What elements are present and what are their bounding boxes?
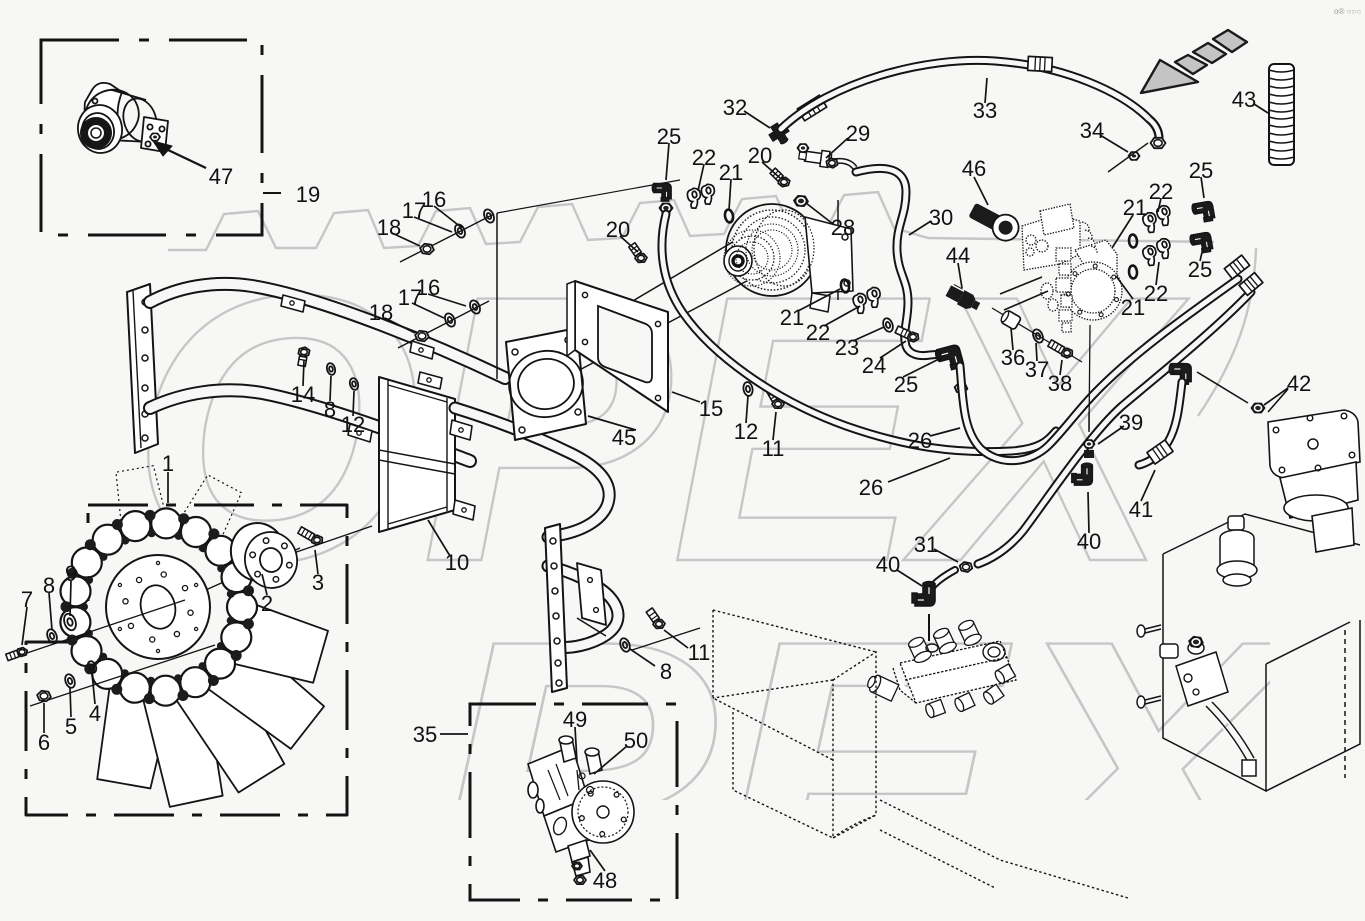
svg-text:33: 33 <box>973 98 997 123</box>
svg-text:50: 50 <box>624 728 648 753</box>
svg-text:9: 9 <box>65 561 77 586</box>
svg-text:23: 23 <box>835 335 859 360</box>
svg-text:20: 20 <box>606 217 630 242</box>
svg-text:30: 30 <box>929 205 953 230</box>
svg-text:28: 28 <box>831 215 855 240</box>
svg-text:39: 39 <box>1119 410 1143 435</box>
svg-text:43: 43 <box>1232 87 1256 112</box>
svg-text:15: 15 <box>699 396 723 421</box>
svg-text:36: 36 <box>1001 345 1025 370</box>
svg-text:22: 22 <box>806 320 830 345</box>
svg-text:8: 8 <box>660 659 672 684</box>
svg-text:3: 3 <box>312 570 324 595</box>
svg-text:14: 14 <box>291 382 315 407</box>
svg-text:48: 48 <box>593 868 617 893</box>
svg-text:26: 26 <box>908 428 932 453</box>
svg-text:21: 21 <box>1121 295 1145 320</box>
svg-text:8: 8 <box>43 573 55 598</box>
svg-text:31: 31 <box>914 532 938 557</box>
svg-text:17: 17 <box>398 285 422 310</box>
svg-text:18: 18 <box>369 300 393 325</box>
svg-text:19: 19 <box>296 182 320 207</box>
svg-text:20: 20 <box>748 143 772 168</box>
svg-text:42: 42 <box>1287 371 1311 396</box>
svg-text:11: 11 <box>688 640 711 665</box>
svg-text:45: 45 <box>612 425 636 450</box>
svg-text:10: 10 <box>445 550 469 575</box>
svg-text:46: 46 <box>962 156 986 181</box>
svg-text:38: 38 <box>1048 371 1072 396</box>
svg-text:32: 32 <box>723 95 747 120</box>
svg-text:5: 5 <box>65 714 77 739</box>
svg-text:47: 47 <box>209 164 233 189</box>
svg-text:26: 26 <box>859 475 883 500</box>
svg-text:22: 22 <box>1149 179 1173 204</box>
svg-text:17: 17 <box>402 198 426 223</box>
svg-text:29: 29 <box>846 121 870 146</box>
svg-text:12: 12 <box>341 412 365 437</box>
svg-text:21: 21 <box>1123 195 1147 220</box>
svg-text:12: 12 <box>734 419 758 444</box>
svg-text:25: 25 <box>1188 257 1212 282</box>
svg-text:7: 7 <box>21 587 33 612</box>
svg-text:11: 11 <box>762 436 785 461</box>
svg-text:37: 37 <box>1025 357 1049 382</box>
svg-text:18: 18 <box>377 215 401 240</box>
svg-text:40: 40 <box>1077 529 1101 554</box>
svg-text:40: 40 <box>876 552 900 577</box>
svg-text:35: 35 <box>413 722 437 747</box>
svg-text:1: 1 <box>162 451 174 476</box>
svg-text:44: 44 <box>946 243 970 268</box>
svg-text:49: 49 <box>563 707 587 732</box>
svg-text:25: 25 <box>657 124 681 149</box>
svg-text:25: 25 <box>894 372 918 397</box>
svg-text:25: 25 <box>1189 158 1213 183</box>
svg-text:22: 22 <box>692 145 716 170</box>
svg-text:4: 4 <box>89 701 101 726</box>
svg-text:41: 41 <box>1129 497 1153 522</box>
svg-text:22: 22 <box>1144 281 1168 306</box>
svg-text:6: 6 <box>38 730 50 755</box>
svg-text:8: 8 <box>324 397 336 422</box>
svg-text:2: 2 <box>261 591 273 616</box>
svg-text:24: 24 <box>862 353 886 378</box>
svg-text:34: 34 <box>1080 118 1104 143</box>
svg-text:21: 21 <box>719 160 743 185</box>
svg-text:o® ○○○: o® ○○○ <box>1334 7 1361 16</box>
svg-text:21: 21 <box>780 305 804 330</box>
